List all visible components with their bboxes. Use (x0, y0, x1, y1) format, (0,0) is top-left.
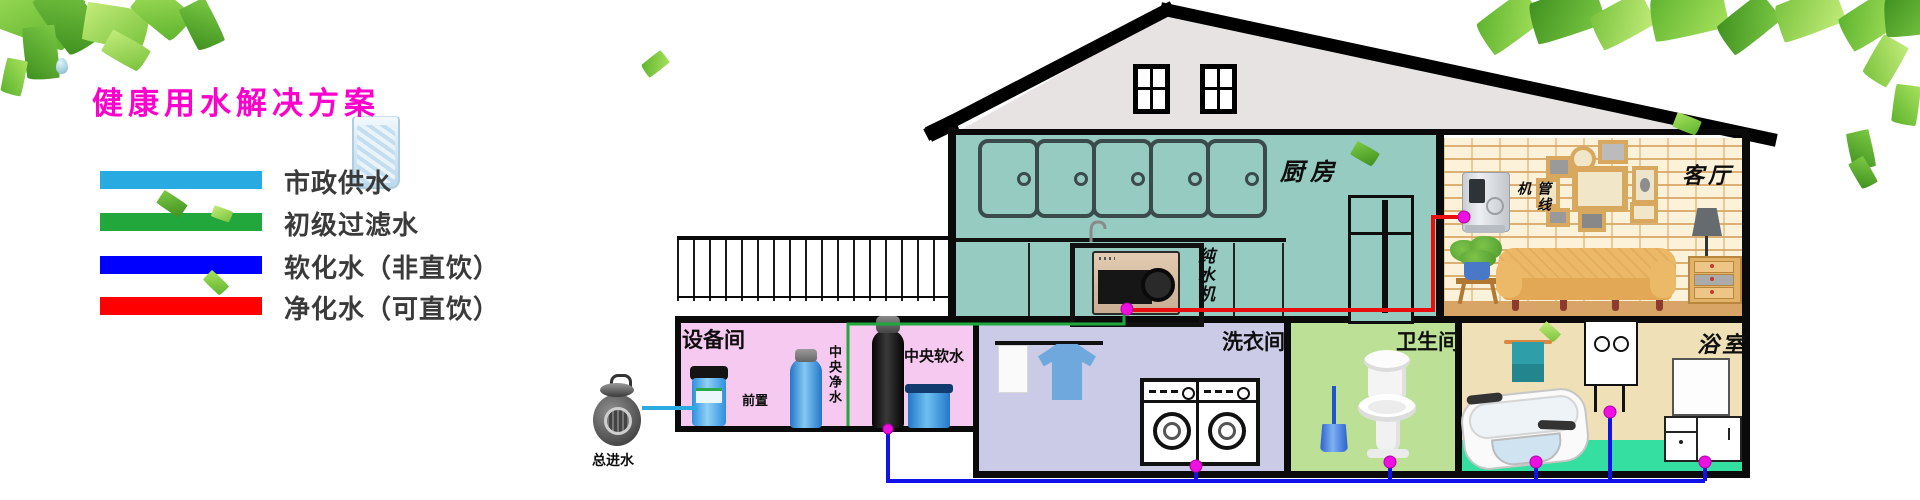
heater-leg (1594, 384, 1597, 412)
central-purifier-tank (790, 358, 822, 428)
drawer-chest (1688, 256, 1742, 304)
toilet-brush-handle (1332, 386, 1336, 428)
toilet-brush-cup (1320, 424, 1348, 452)
ceiling-line (948, 129, 1749, 135)
counter-divider (1028, 243, 1030, 316)
wall-right (1742, 133, 1750, 478)
label-prefilter: 前置 (742, 390, 768, 409)
main-inlet-water-meter (593, 394, 641, 446)
legend-swatch-filtered (100, 213, 262, 231)
banner-healthy-water-solution: 健康用水解决方案 市政供水 初级过滤水 软化水（非直饮） 净化水（可直饮） 厨房… (0, 0, 1920, 500)
washer-door (1208, 412, 1246, 450)
brine-tank-lid (905, 384, 953, 393)
slab-bottom (976, 471, 1749, 478)
label-bath: 浴室 (1697, 327, 1747, 359)
vanity-cabinet (1664, 416, 1742, 462)
ro-water-machine (1092, 251, 1180, 315)
label-main-inlet: 总进水 (592, 450, 634, 470)
page-title: 健康用水解决方案 (92, 78, 380, 123)
refrigerator (1348, 195, 1414, 324)
leaf-decoration (1881, 0, 1920, 39)
water-heater (1584, 320, 1638, 386)
sofa-arm (1650, 260, 1676, 298)
attic-window-left (1133, 64, 1170, 114)
label-ro-machine: 纯水机 (1192, 247, 1217, 309)
label-kitchen: 厨房 (1280, 152, 1340, 187)
lamp-pole (1705, 236, 1708, 258)
cabinet-door (1092, 139, 1153, 218)
softener-valve (876, 316, 900, 333)
label-equipment: 设备间 (682, 324, 745, 354)
leaf-decoration (20, 24, 61, 82)
cabinet-door (1149, 139, 1210, 218)
attic-window-right (1200, 64, 1237, 114)
cabinet-knob (1017, 172, 1031, 186)
wall-laundry-toilet (1284, 322, 1291, 472)
prefilter-canister (692, 378, 726, 426)
leaf-decoration (1891, 84, 1920, 126)
sofa-arm (1496, 260, 1522, 298)
legend-swatch-softened (100, 256, 262, 274)
wall-equipment-laundry (973, 316, 979, 478)
terrace-fence-base (677, 296, 952, 298)
picture-frame (1578, 210, 1606, 232)
brine-tank (908, 390, 950, 428)
picture-frame (1630, 202, 1658, 223)
bathtub (1458, 386, 1591, 473)
legend-label-softened: 软化水（非直饮） (284, 248, 500, 285)
legend-label-purified: 净化水（可直饮） (284, 289, 500, 326)
legend-label-municipal: 市政供水 (284, 163, 392, 200)
toilet-base (1367, 449, 1409, 458)
washer-knob (1182, 387, 1195, 400)
pipeline-water-dispenser (1462, 172, 1510, 232)
label-laundry: 洗衣间 (1222, 326, 1285, 356)
picture-frame-large (1572, 166, 1628, 212)
cabinet-door (978, 139, 1039, 218)
wall-kitchen-living (1436, 133, 1444, 322)
cabinet-door (1035, 139, 1096, 218)
purifier-valve (795, 349, 817, 362)
dispenser-screen (1469, 179, 1485, 203)
label-living: 客厅 (1682, 158, 1734, 190)
washer-knob (1237, 387, 1250, 400)
ro-dial (1141, 268, 1175, 302)
washing-machines (1140, 378, 1260, 466)
label-central-softener: 中央软水 (904, 345, 964, 366)
wall-kitchen-left (948, 127, 956, 322)
hanging-cloth (998, 345, 1028, 393)
terrace-fence (677, 236, 952, 301)
cabinet-door (1206, 139, 1267, 218)
toilet-pedestal (1376, 418, 1400, 452)
bathroom-mirror (1672, 358, 1730, 416)
picture-frame (1598, 140, 1628, 164)
counter-divider (1233, 243, 1235, 316)
heater-leg (1622, 384, 1625, 412)
towel (1512, 342, 1544, 382)
label-toilet: 卫生间 (1396, 326, 1459, 356)
sofa-seat (1502, 278, 1672, 300)
wall-equipment-left (675, 316, 681, 432)
water-meter-lid (600, 383, 634, 397)
legend-label-filtered: 初级过滤水 (284, 205, 419, 242)
water-drop-decoration (56, 58, 68, 74)
counter-divider (1282, 243, 1284, 316)
picture-frame (1546, 156, 1572, 178)
toilet-seat (1358, 394, 1416, 422)
fridge-handle (1382, 200, 1388, 313)
label-central-purifier: 中央净水 (825, 345, 844, 409)
legend-swatch-municipal (100, 171, 262, 189)
plant-pot (1464, 262, 1490, 280)
legend-swatch-purified (100, 297, 262, 315)
central-softener-tank (872, 330, 904, 428)
counter-top (956, 238, 1286, 242)
washer-door (1153, 412, 1191, 450)
picture-frame (1632, 166, 1658, 204)
label-pipeline-machine: 管线机 (1512, 181, 1552, 227)
